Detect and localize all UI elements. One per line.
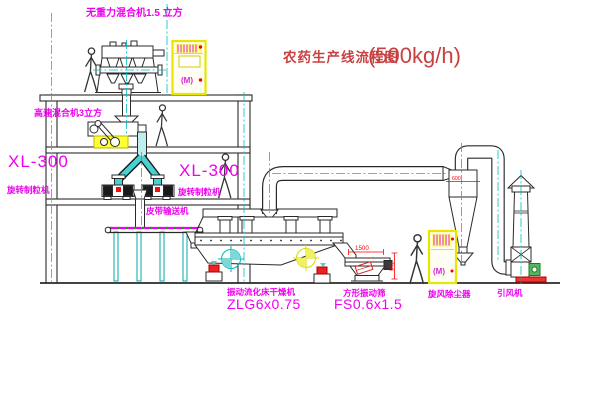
label-screen-model: FS0.6x1.5	[334, 297, 402, 311]
label-cyclone: 旋风除尘器	[428, 290, 471, 299]
label-dryer-model: ZLG6x0.75	[227, 297, 301, 311]
gravity-mixer-equipment	[95, 41, 164, 116]
vibrating-screen-equipment	[345, 258, 392, 281]
person-figure	[410, 235, 424, 284]
dim-screen-height: 541	[390, 262, 396, 271]
label-high-speed-mixer: 高速混合机3立方	[34, 109, 102, 118]
granulator-discharge-pipe	[133, 190, 147, 228]
granulator-left	[102, 175, 134, 200]
label-gravity-mixer: 无重力混合机1.5 立方	[86, 9, 183, 19]
cabinet-ground-mark: (M)	[433, 267, 445, 276]
label-granulator-left-name: 旋转制粒机	[7, 186, 50, 195]
person-figure	[156, 105, 167, 146]
induced-draft-fan-equipment	[506, 260, 546, 282]
label-granulator-right-model: XL-300	[179, 162, 240, 179]
dim-screen-length: 1500	[355, 245, 369, 252]
granulator-right	[142, 175, 174, 200]
fluid-bed-dryer-equipment	[195, 209, 356, 283]
label-belt-conveyor: 皮带输送机	[146, 207, 189, 216]
label-fan: 引风机	[497, 289, 523, 298]
label-granulator-left-model: XL-300	[8, 153, 69, 170]
control-cabinet-ground: (M)	[429, 231, 456, 283]
label-granulator-right-name: 旋转制粒机	[178, 188, 221, 197]
dim-cyclone-diameter: 600	[452, 176, 461, 182]
control-cabinet-top: (M)	[173, 41, 206, 94]
fan-base	[516, 277, 546, 282]
diagram-title-capacity: (500kg/h)	[368, 45, 461, 67]
flow-diagram-canvas: (M) (M) 1500 541 600	[0, 0, 600, 403]
cabinet-top-mark: (M)	[181, 76, 193, 85]
